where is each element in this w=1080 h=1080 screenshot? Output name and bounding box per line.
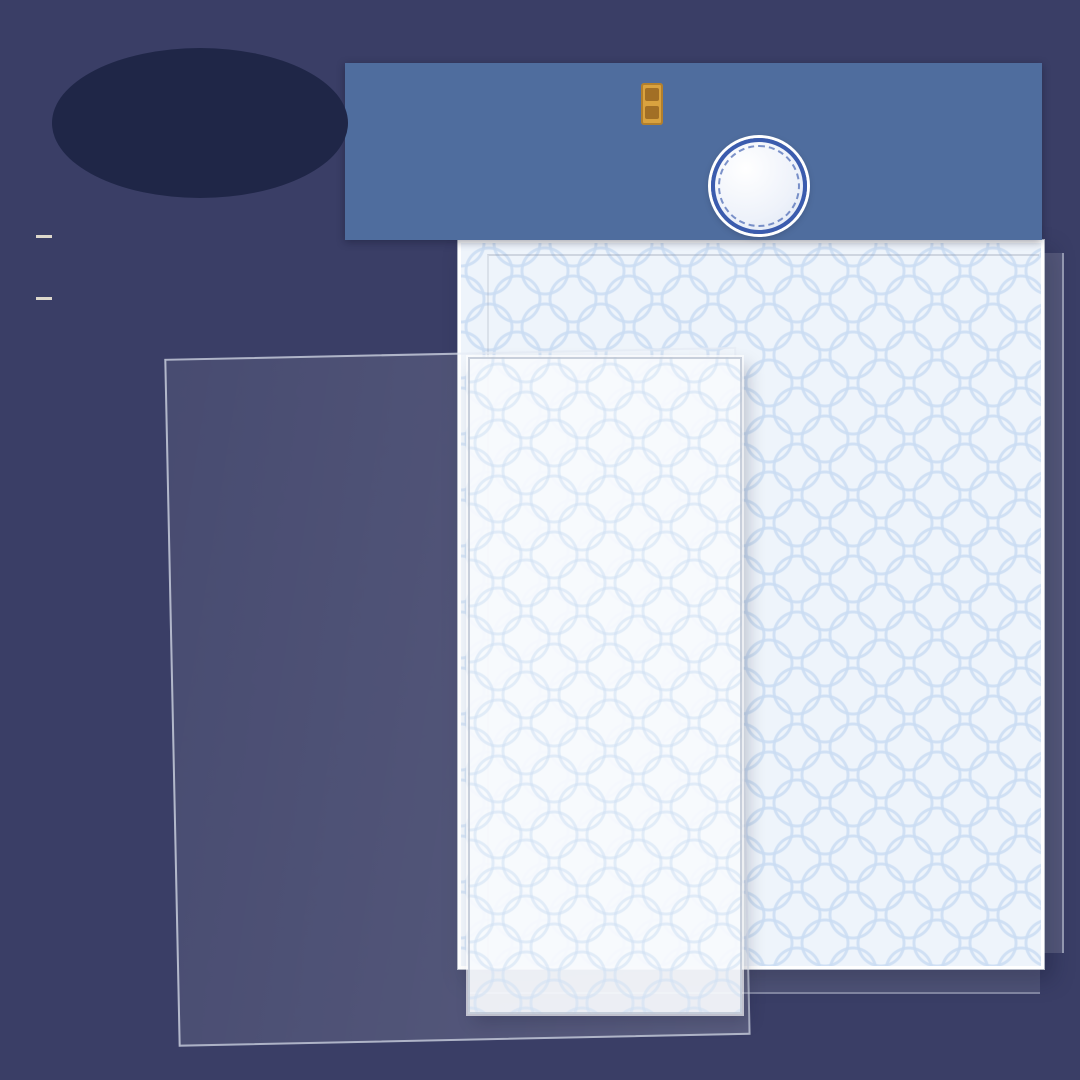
version-badge [711,138,807,234]
pet-sheet-margin-right [1041,253,1064,953]
store-badge [52,48,348,198]
spec-list [36,192,52,316]
sticker-sheet-middle [468,357,742,1014]
gold-seal-icon [641,83,663,125]
title-banner [345,63,1042,240]
spec-item-scene-card [36,192,52,238]
banner-subtitle-2 [365,183,377,218]
spec-item-pet-sticker [36,254,52,300]
product-poster [0,0,1080,1080]
